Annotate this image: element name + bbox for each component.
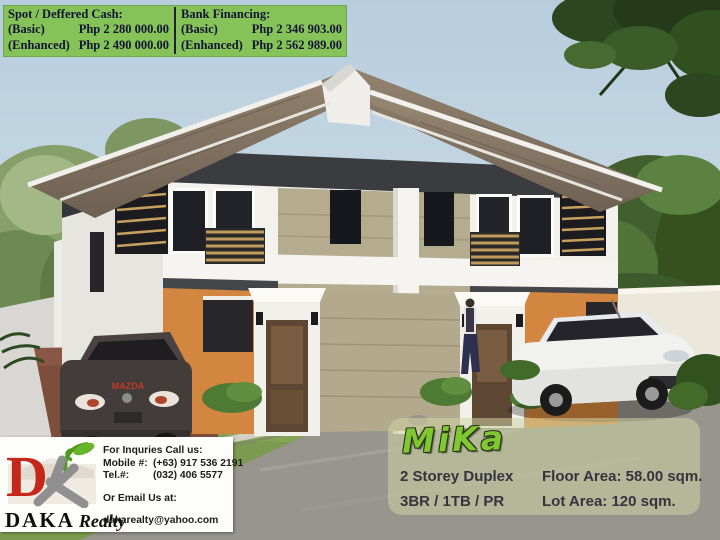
brand-contact-panel: D DAKARealty For Inquries Call us: Mobil…: [0, 437, 233, 532]
property-lot-area: Lot Area: 120 sqm.: [542, 489, 702, 514]
property-configuration: 3BR / 1TB / PR: [400, 489, 542, 514]
contact-email: dakarealty@yahoo.com: [103, 515, 231, 528]
property-details: 2 Storey Duplex 3BR / 1TB / PR Floor Are…: [400, 464, 692, 514]
spot-enhanced-row: (Enhanced) Php 2 490 000.00: [8, 38, 169, 53]
contact-call-heading: For Inquries Call us:: [103, 445, 231, 458]
bank-financing-column: Bank Financing: (Basic) Php 2 346 903.00…: [174, 7, 342, 54]
balcony-railing-left: [205, 228, 265, 264]
property-info-panel: MiKa 2 Storey Duplex 3BR / 1TB / PR Floo…: [388, 418, 700, 515]
advertisement-flyer: MAZDA Spot / Deffered Cash:: [0, 0, 720, 540]
contact-telephone: Tel.#: (032) 406 5577: [103, 470, 231, 483]
property-floor-area: Floor Area: 58.00 sqm.: [542, 464, 702, 489]
contact-block: For Inquries Call us: Mobile #: (+63) 91…: [103, 445, 231, 528]
balcony-railing-right: [470, 232, 520, 266]
daka-realty-logo-icon: D: [2, 438, 102, 508]
contact-mobile: Mobile #: (+63) 917 536 2191: [103, 458, 231, 471]
property-details-left: 2 Storey Duplex 3BR / 1TB / PR: [400, 464, 542, 514]
spot-cash-title: Spot / Deffered Cash:: [8, 7, 169, 22]
spot-cash-column: Spot / Deffered Cash: (Basic) Php 2 280 …: [8, 7, 174, 54]
property-type: 2 Storey Duplex: [400, 464, 542, 489]
price-banner: Spot / Deffered Cash: (Basic) Php 2 280 …: [3, 5, 347, 57]
property-name: MiKa: [401, 418, 506, 461]
brand-name-daka: DAKA: [5, 508, 75, 532]
svg-text:MAZDA: MAZDA: [112, 381, 145, 391]
property-details-right: Floor Area: 58.00 sqm. Lot Area: 120 sqm…: [542, 464, 702, 514]
svg-text:D: D: [6, 444, 48, 508]
bank-financing-title: Bank Financing:: [181, 7, 342, 22]
bank-enhanced-row: (Enhanced) Php 2 562 989.00: [181, 38, 342, 53]
contact-email-heading: Or Email Us at:: [103, 493, 231, 506]
spot-basic-row: (Basic) Php 2 280 000.00: [8, 22, 169, 37]
bank-basic-row: (Basic) Php 2 346 903.00: [181, 22, 342, 37]
